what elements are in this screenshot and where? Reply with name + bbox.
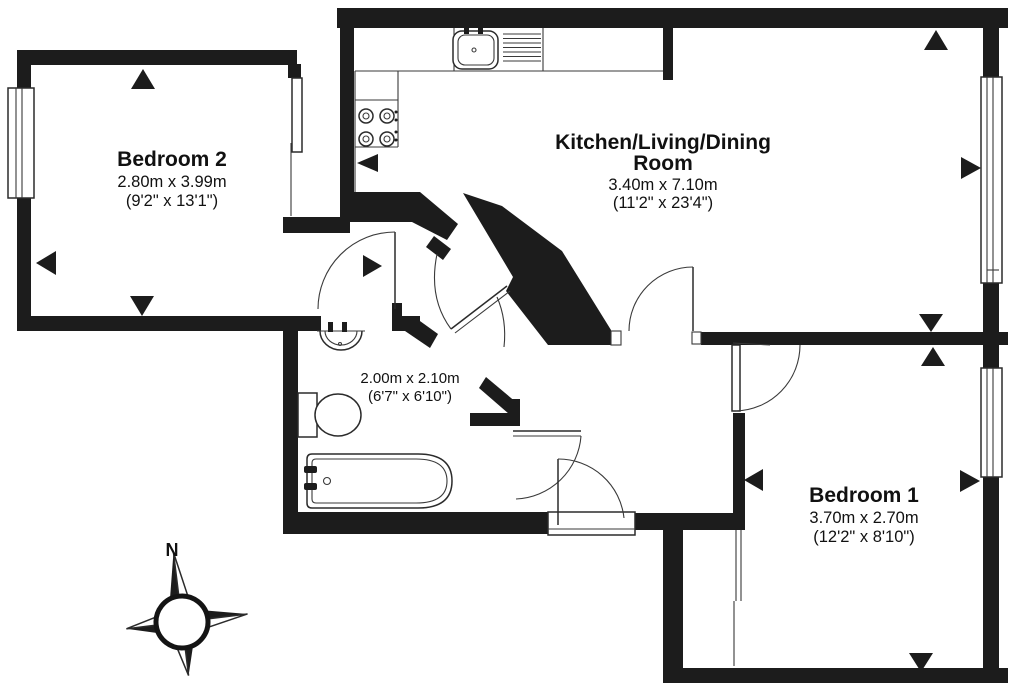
bedroom1-label: Bedroom 1 3.70m x 2.70m (12'2" x 8'10") xyxy=(809,484,919,546)
wall-right-upper xyxy=(983,28,999,77)
arrow-down-icon xyxy=(130,296,154,316)
compass-north-label: N xyxy=(166,540,179,560)
bedroom2-label: Bedroom 2 2.80m x 3.99m (9'2" x 13'1") xyxy=(117,148,227,210)
basin-icon xyxy=(317,322,365,350)
bedroom2-door xyxy=(291,78,302,216)
wall-bathroom-west xyxy=(283,316,298,534)
wall-kitchen-west-bar xyxy=(340,8,354,222)
bedroom1-name: Bedroom 1 xyxy=(809,484,919,507)
drainer-icon xyxy=(503,34,541,61)
bedroom2-window xyxy=(8,88,34,198)
wall-hall-north xyxy=(283,217,350,233)
bathroom-label: 2.00m x 2.10m (6'7" x 6'10") xyxy=(360,370,459,405)
wall-top xyxy=(337,8,1008,28)
arrow-left-icon xyxy=(744,469,763,491)
kld-name-line1: Kitchen/Living/Dining xyxy=(555,131,771,154)
bathtub-icon xyxy=(304,454,452,508)
livingroom-door xyxy=(611,267,701,345)
floor-plan-page: N Bedroom 2 2.80m x 3.99m (9'2" x 13'1")… xyxy=(0,0,1024,683)
bathroom-fixtures xyxy=(298,322,452,508)
wall-bedroom1-west xyxy=(733,413,745,530)
wall-closet-west xyxy=(663,528,683,677)
kitchen-counter xyxy=(355,28,663,192)
wall-bottom-west xyxy=(283,512,548,534)
arrow-left-icon xyxy=(36,251,56,275)
bedroom2-imperial: (9'2" x 13'1") xyxy=(126,192,218,210)
kld-metric: 3.40m x 7.10m xyxy=(608,176,717,194)
front-door xyxy=(548,459,635,535)
bedroom1-imperial: (12'2" x 8'10") xyxy=(813,528,914,546)
wall-livingroom-bottom xyxy=(701,332,1008,345)
bedroom1-window xyxy=(981,368,1002,477)
wall-bedroom2-top xyxy=(17,50,297,65)
wall-right-lower xyxy=(983,477,999,672)
wall-bedroom2-left-upper xyxy=(17,50,31,90)
floor-plan: N Bedroom 2 2.80m x 3.99m (9'2" x 13'1")… xyxy=(0,0,1024,683)
hob-icon xyxy=(359,109,398,146)
wall-bedroom2-bottom xyxy=(17,316,321,331)
arrow-right-icon xyxy=(960,470,980,492)
wall-kitchen-counter-stub xyxy=(663,28,673,80)
kld-imperial: (11'2" x 23'4") xyxy=(613,194,713,212)
arrow-right-icon xyxy=(363,255,382,277)
vestibule-door xyxy=(434,254,510,347)
arrow-down-icon xyxy=(919,314,943,332)
arrow-up-icon xyxy=(921,347,945,366)
bedroom2-metric: 2.80m x 3.99m xyxy=(117,173,226,191)
bedroom1-metric: 3.70m x 2.70m xyxy=(809,509,918,527)
bedroom2-name: Bedroom 2 xyxy=(117,148,227,171)
compass-rose: N xyxy=(118,540,254,682)
wall-bathroom-door-jamb xyxy=(392,303,402,317)
kitchen-living-dining-label: Kitchen/Living/Dining Room 3.40m x 7.10m… xyxy=(555,131,771,212)
wall-bedroom1-bottom xyxy=(663,668,1008,683)
kld-name-line2: Room xyxy=(633,152,693,175)
arrow-right-icon xyxy=(961,157,981,179)
toilet-icon xyxy=(298,393,361,437)
wall-cupboard-stub xyxy=(509,399,520,426)
wall-bedroom2-left-lower xyxy=(17,198,31,330)
hall-cupboard-door xyxy=(513,431,581,499)
arrow-left-icon xyxy=(357,154,378,172)
wall-kitchen-nook-south xyxy=(354,192,458,240)
wall-bottom-entry-east xyxy=(635,513,742,530)
walls xyxy=(17,8,1008,683)
bathroom-door xyxy=(318,232,395,309)
kitchen-sink-icon xyxy=(453,23,498,69)
wall-bedroom2-east-stub xyxy=(288,64,301,78)
bathroom-imperial: (6'7" x 6'10") xyxy=(368,388,452,405)
wall-right-middle xyxy=(983,283,999,368)
kitchen-fixtures xyxy=(355,23,663,192)
arrow-up-icon xyxy=(131,69,155,89)
arrow-up-icon xyxy=(924,30,948,50)
bedroom1-door xyxy=(732,345,800,411)
livingroom-window xyxy=(981,77,1002,283)
bathroom-metric: 2.00m x 2.10m xyxy=(360,370,459,387)
wall-vestibule-wedge xyxy=(463,193,611,345)
